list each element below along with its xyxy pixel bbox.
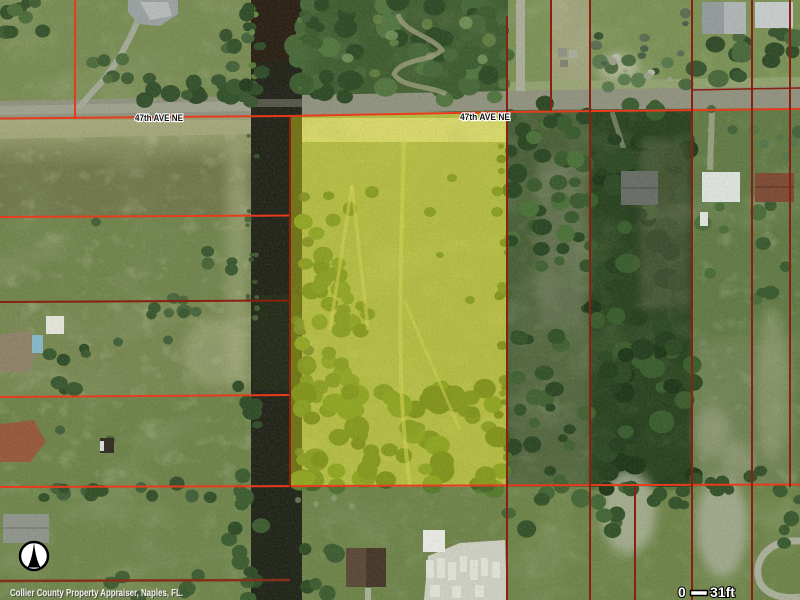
- svg-text:Collier County Property Apprai: Collier County Property Appraiser, Naple…: [10, 588, 183, 599]
- svg-text:47th AVE NE: 47th AVE NE: [460, 112, 510, 122]
- svg-text:47th AVE NE: 47th AVE NE: [135, 113, 183, 123]
- svg-text:31ft: 31ft: [710, 584, 735, 600]
- svg-text:0: 0: [678, 584, 686, 600]
